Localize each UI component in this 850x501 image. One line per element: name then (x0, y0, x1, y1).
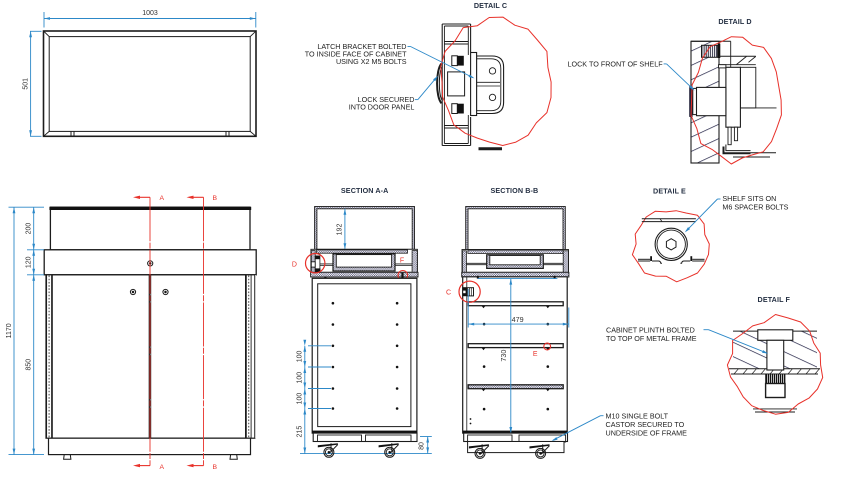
svg-text:SECTION B-B: SECTION B-B (490, 186, 538, 195)
svg-text:200: 200 (25, 223, 32, 235)
svg-text:B: B (213, 195, 218, 202)
svg-text:INTO DOOR PANEL: INTO DOOR PANEL (349, 103, 415, 112)
svg-text:C: C (446, 290, 451, 297)
svg-text:E: E (533, 351, 538, 358)
svg-text:192: 192 (336, 224, 343, 236)
svg-text:215: 215 (296, 426, 303, 438)
svg-text:100: 100 (296, 372, 303, 384)
svg-text:LOCK TO FRONT OF SHELF: LOCK TO FRONT OF SHELF (568, 59, 664, 68)
svg-text:DETAIL D: DETAIL D (718, 17, 751, 26)
svg-text:501: 501 (23, 78, 30, 90)
svg-text:B: B (213, 464, 218, 471)
svg-text:1170: 1170 (6, 323, 13, 338)
svg-text:80: 80 (419, 442, 426, 450)
svg-text:SECTION A-A: SECTION A-A (341, 186, 389, 195)
svg-text:TO TOP OF METAL FRAME: TO TOP OF METAL FRAME (606, 334, 697, 343)
svg-text:DETAIL E: DETAIL E (653, 187, 686, 196)
svg-text:120: 120 (25, 256, 32, 268)
svg-text:F: F (400, 257, 404, 264)
svg-text:479: 479 (512, 315, 524, 324)
svg-text:100: 100 (296, 393, 303, 405)
svg-text:UNDERSIDE OF FRAME: UNDERSIDE OF FRAME (606, 428, 688, 437)
svg-text:DETAIL F: DETAIL F (758, 295, 791, 304)
svg-text:A: A (160, 464, 165, 471)
svg-text:1003: 1003 (142, 10, 158, 17)
svg-text:730: 730 (499, 350, 508, 362)
svg-text:DETAIL C: DETAIL C (474, 1, 507, 10)
svg-text:USING X2 M5 BOLTS: USING X2 M5 BOLTS (336, 57, 407, 66)
svg-text:D: D (292, 261, 297, 268)
svg-text:850: 850 (25, 359, 32, 371)
svg-text:M6 SPACER BOLTS: M6 SPACER BOLTS (722, 202, 788, 211)
svg-text:A: A (160, 195, 165, 202)
svg-text:100: 100 (296, 350, 303, 362)
